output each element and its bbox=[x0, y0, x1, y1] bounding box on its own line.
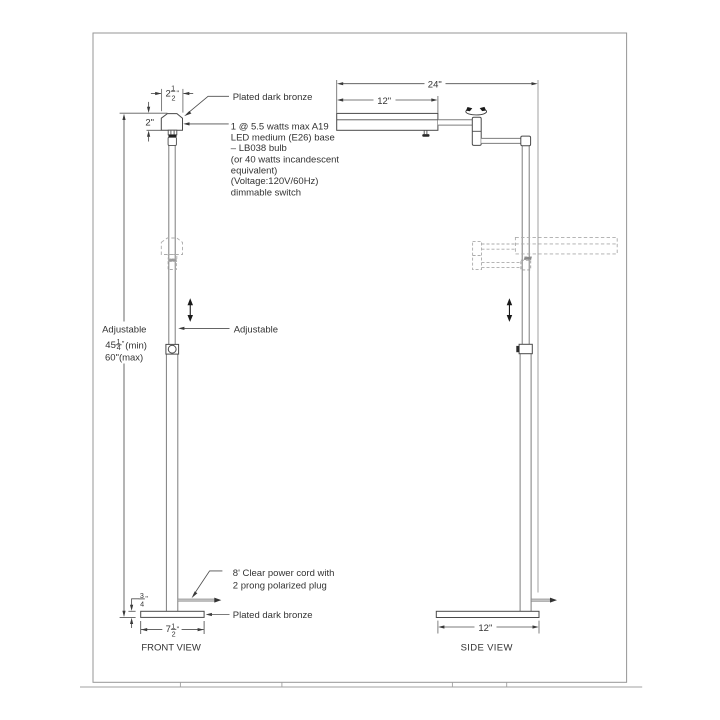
svg-text:LED medium (E26) base: LED medium (E26) base bbox=[231, 132, 335, 143]
svg-text:Plated dark bronze: Plated dark bronze bbox=[233, 92, 313, 103]
svg-text:12": 12" bbox=[478, 623, 492, 634]
svg-text:Adjustable: Adjustable bbox=[102, 325, 146, 336]
svg-text:2": 2" bbox=[145, 117, 154, 128]
svg-text:4: 4 bbox=[117, 343, 121, 352]
svg-text:7: 7 bbox=[166, 624, 171, 635]
svg-text:45: 45 bbox=[105, 340, 116, 351]
svg-text:Adjustable: Adjustable bbox=[234, 324, 278, 335]
svg-text:dimmable switch: dimmable switch bbox=[231, 188, 301, 199]
svg-text:(min): (min) bbox=[125, 340, 147, 351]
svg-text:24": 24" bbox=[428, 79, 442, 90]
svg-text:1 @ 5.5 watts max A19: 1 @ 5.5 watts max A19 bbox=[231, 121, 329, 132]
svg-text:SIDE VIEW: SIDE VIEW bbox=[461, 642, 513, 653]
svg-text:equivalent): equivalent) bbox=[231, 165, 277, 176]
svg-text:60"(max): 60"(max) bbox=[105, 352, 143, 363]
svg-text:– LB038 bulb: – LB038 bulb bbox=[231, 143, 287, 154]
svg-text:(Voltage:120V/60Hz): (Voltage:120V/60Hz) bbox=[231, 176, 319, 187]
svg-text:8' Clear power cord with: 8' Clear power cord with bbox=[233, 568, 335, 579]
svg-text:FRONT VIEW: FRONT VIEW bbox=[141, 642, 200, 653]
svg-text:4: 4 bbox=[140, 600, 144, 609]
svg-text:2 prong polarized plug: 2 prong polarized plug bbox=[233, 581, 327, 592]
svg-text:2: 2 bbox=[166, 88, 171, 99]
svg-text:(or 40 watts incandescent: (or 40 watts incandescent bbox=[231, 155, 340, 166]
svg-text:12": 12" bbox=[377, 96, 391, 107]
svg-text:2: 2 bbox=[172, 629, 176, 638]
svg-text:2: 2 bbox=[172, 93, 176, 102]
svg-text:Plated dark bronze: Plated dark bronze bbox=[233, 610, 313, 621]
